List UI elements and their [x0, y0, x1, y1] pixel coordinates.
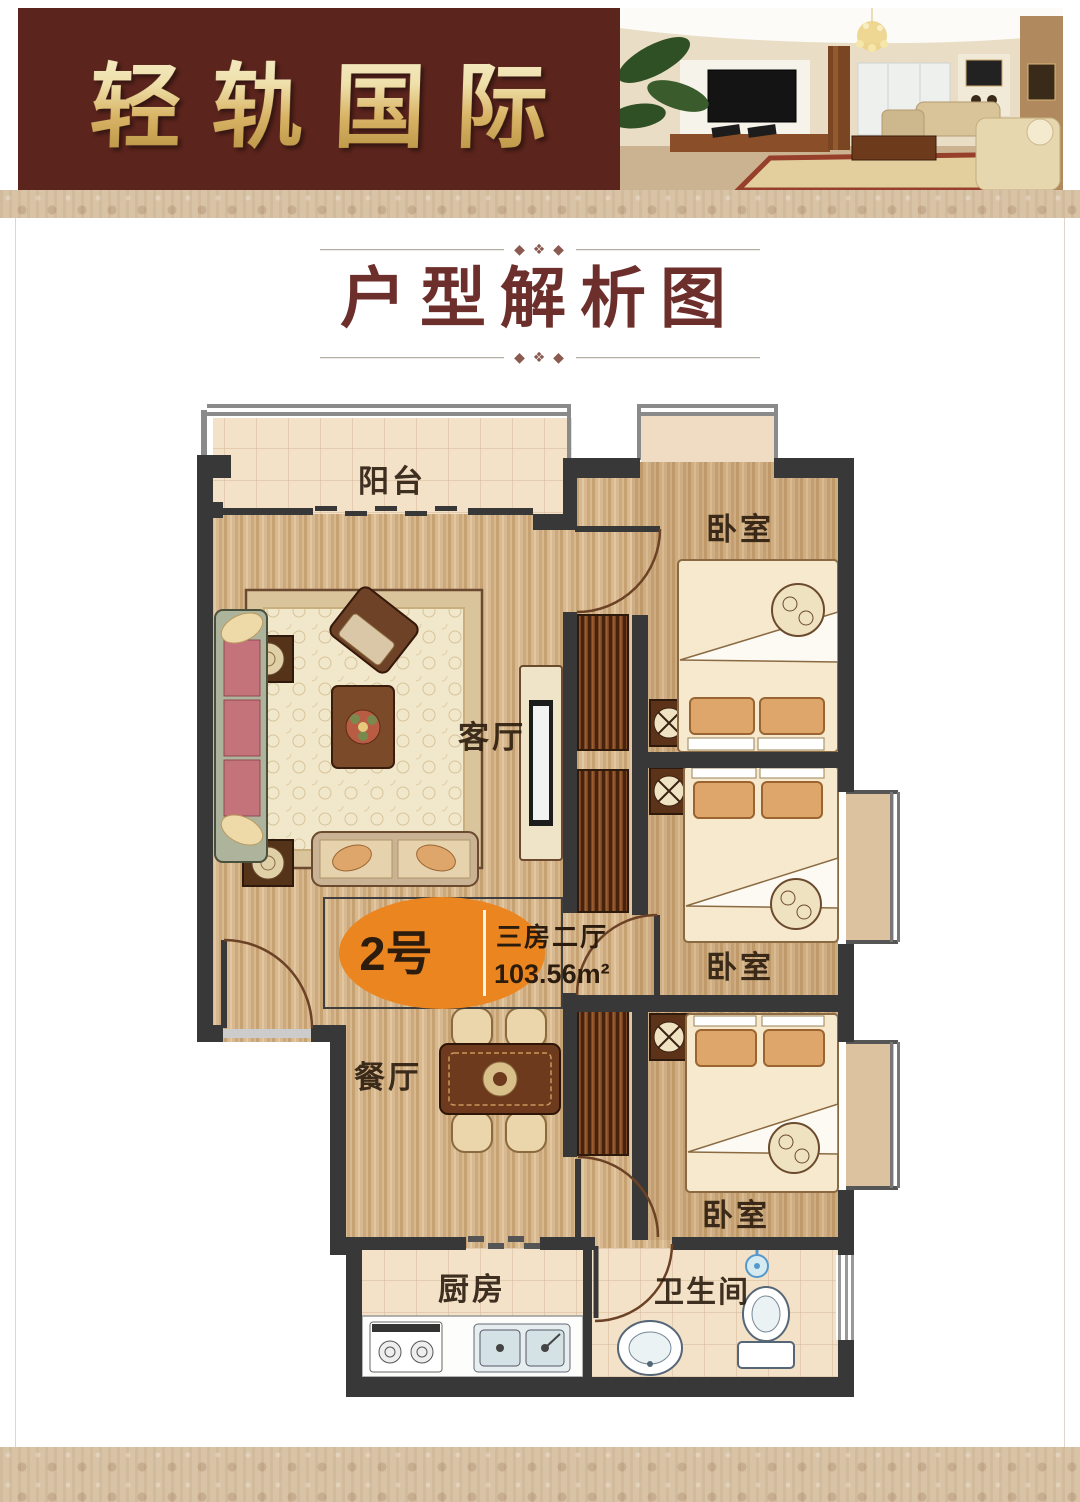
bed-1 [678, 560, 838, 752]
entrance-threshold [223, 1029, 311, 1038]
tv-icon [708, 70, 796, 122]
kitchen-counter [362, 1316, 583, 1377]
loveseat [312, 832, 478, 886]
nightstand [650, 768, 688, 814]
bay-window2-sill [846, 1042, 894, 1188]
bathroom-window [836, 1255, 856, 1340]
deco-strip-bottom [0, 1447, 1080, 1502]
bay-window1-sill [846, 792, 894, 942]
tv-cabinet [520, 666, 562, 860]
label-kitchen: 厨房 [438, 1272, 506, 1307]
label-bedroom-3: 卧室 [702, 1198, 770, 1233]
living-room-photo [620, 8, 1063, 190]
bedroom1-window-sill [641, 414, 774, 462]
label-bathroom: 卫生间 [654, 1276, 750, 1309]
page-border-left [15, 218, 16, 1447]
flyer-page: { "header": { "brand": "轻轨国际" }, "sectio… [0, 0, 1080, 1502]
nightstand [650, 1014, 688, 1060]
badge-unit: 2号 [359, 927, 432, 980]
bed-3 [686, 1014, 838, 1192]
bed-2 [684, 766, 838, 942]
coffee-table [852, 136, 936, 160]
wardrobe [578, 615, 628, 750]
label-balcony: 阳台 [358, 464, 426, 499]
label-bedroom-2: 卧室 [706, 950, 774, 985]
brand-title: 轻轨国际 [88, 33, 581, 166]
flourish-ornament-icon [514, 350, 566, 364]
wardrobe [578, 770, 628, 912]
deco-strip-top [0, 190, 1080, 218]
bathroom-sink [618, 1321, 682, 1375]
sofa [215, 607, 267, 862]
badge-layout: 三房二厅 [496, 922, 608, 952]
page-border-right [1064, 218, 1065, 1447]
section-title: 户型解析图 [0, 252, 1080, 344]
floor-plan: 2号 三房二厅 103.56m² 阳台 卧室 客厅 卧室 餐厅 卧室 厨房 卫生… [185, 395, 910, 1410]
coffee-table [332, 686, 394, 768]
flourish-bottom [320, 348, 760, 366]
label-living: 客厅 [458, 720, 526, 755]
badge-area: 103.56m² [494, 959, 610, 989]
wardrobe [578, 1010, 628, 1155]
brand-header: 轻轨国际 [18, 8, 620, 190]
label-dining: 餐厅 [354, 1060, 422, 1095]
wood-partition [828, 46, 850, 150]
label-bedroom-1: 卧室 [706, 512, 774, 547]
